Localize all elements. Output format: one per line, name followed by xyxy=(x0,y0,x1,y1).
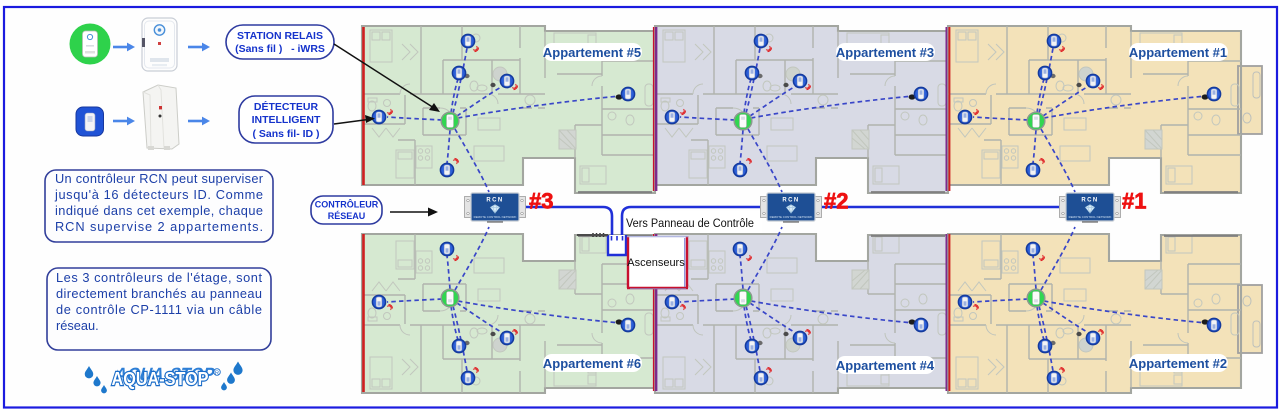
svg-text:#1: #1 xyxy=(1122,189,1146,214)
svg-text:CONTRÔLEUR: CONTRÔLEUR xyxy=(315,199,379,210)
svg-text:Appartement #2: Appartement #2 xyxy=(1129,356,1227,371)
svg-text:#2: #2 xyxy=(824,189,848,214)
svg-text:#3: #3 xyxy=(529,189,553,214)
svg-text:Ascenseurs: Ascenseurs xyxy=(627,257,685,269)
svg-text:INTELLIGENT: INTELLIGENT xyxy=(252,114,321,126)
svg-text:Appartement #4: Appartement #4 xyxy=(836,358,935,373)
svg-text:RÉSEAU: RÉSEAU xyxy=(328,211,366,221)
svg-text:Appartement #6: Appartement #6 xyxy=(543,356,641,371)
svg-text:AQUA-STOP: AQUA-STOP xyxy=(112,368,209,389)
svg-text:Un contrôleur RCN peut supervi: Un contrôleur RCN peut superviser jusqu'… xyxy=(54,171,267,234)
svg-text:Appartement #5: Appartement #5 xyxy=(543,45,641,60)
svg-text:Vers Panneau de Contrôle: Vers Panneau de Contrôle xyxy=(626,216,754,230)
svg-text:( Sans fil- ID ): ( Sans fil- ID ) xyxy=(252,128,319,140)
svg-text:R: R xyxy=(215,371,219,377)
svg-text:Appartement #3: Appartement #3 xyxy=(836,45,934,60)
svg-text:Appartement #1: Appartement #1 xyxy=(1129,45,1227,60)
svg-text:(Sans fil ) - iWRS: (Sans fil ) - iWRS xyxy=(235,43,325,55)
svg-text:DÉTECTEUR: DÉTECTEUR xyxy=(254,100,319,113)
svg-text:STATION RELAIS: STATION RELAIS xyxy=(237,30,323,42)
